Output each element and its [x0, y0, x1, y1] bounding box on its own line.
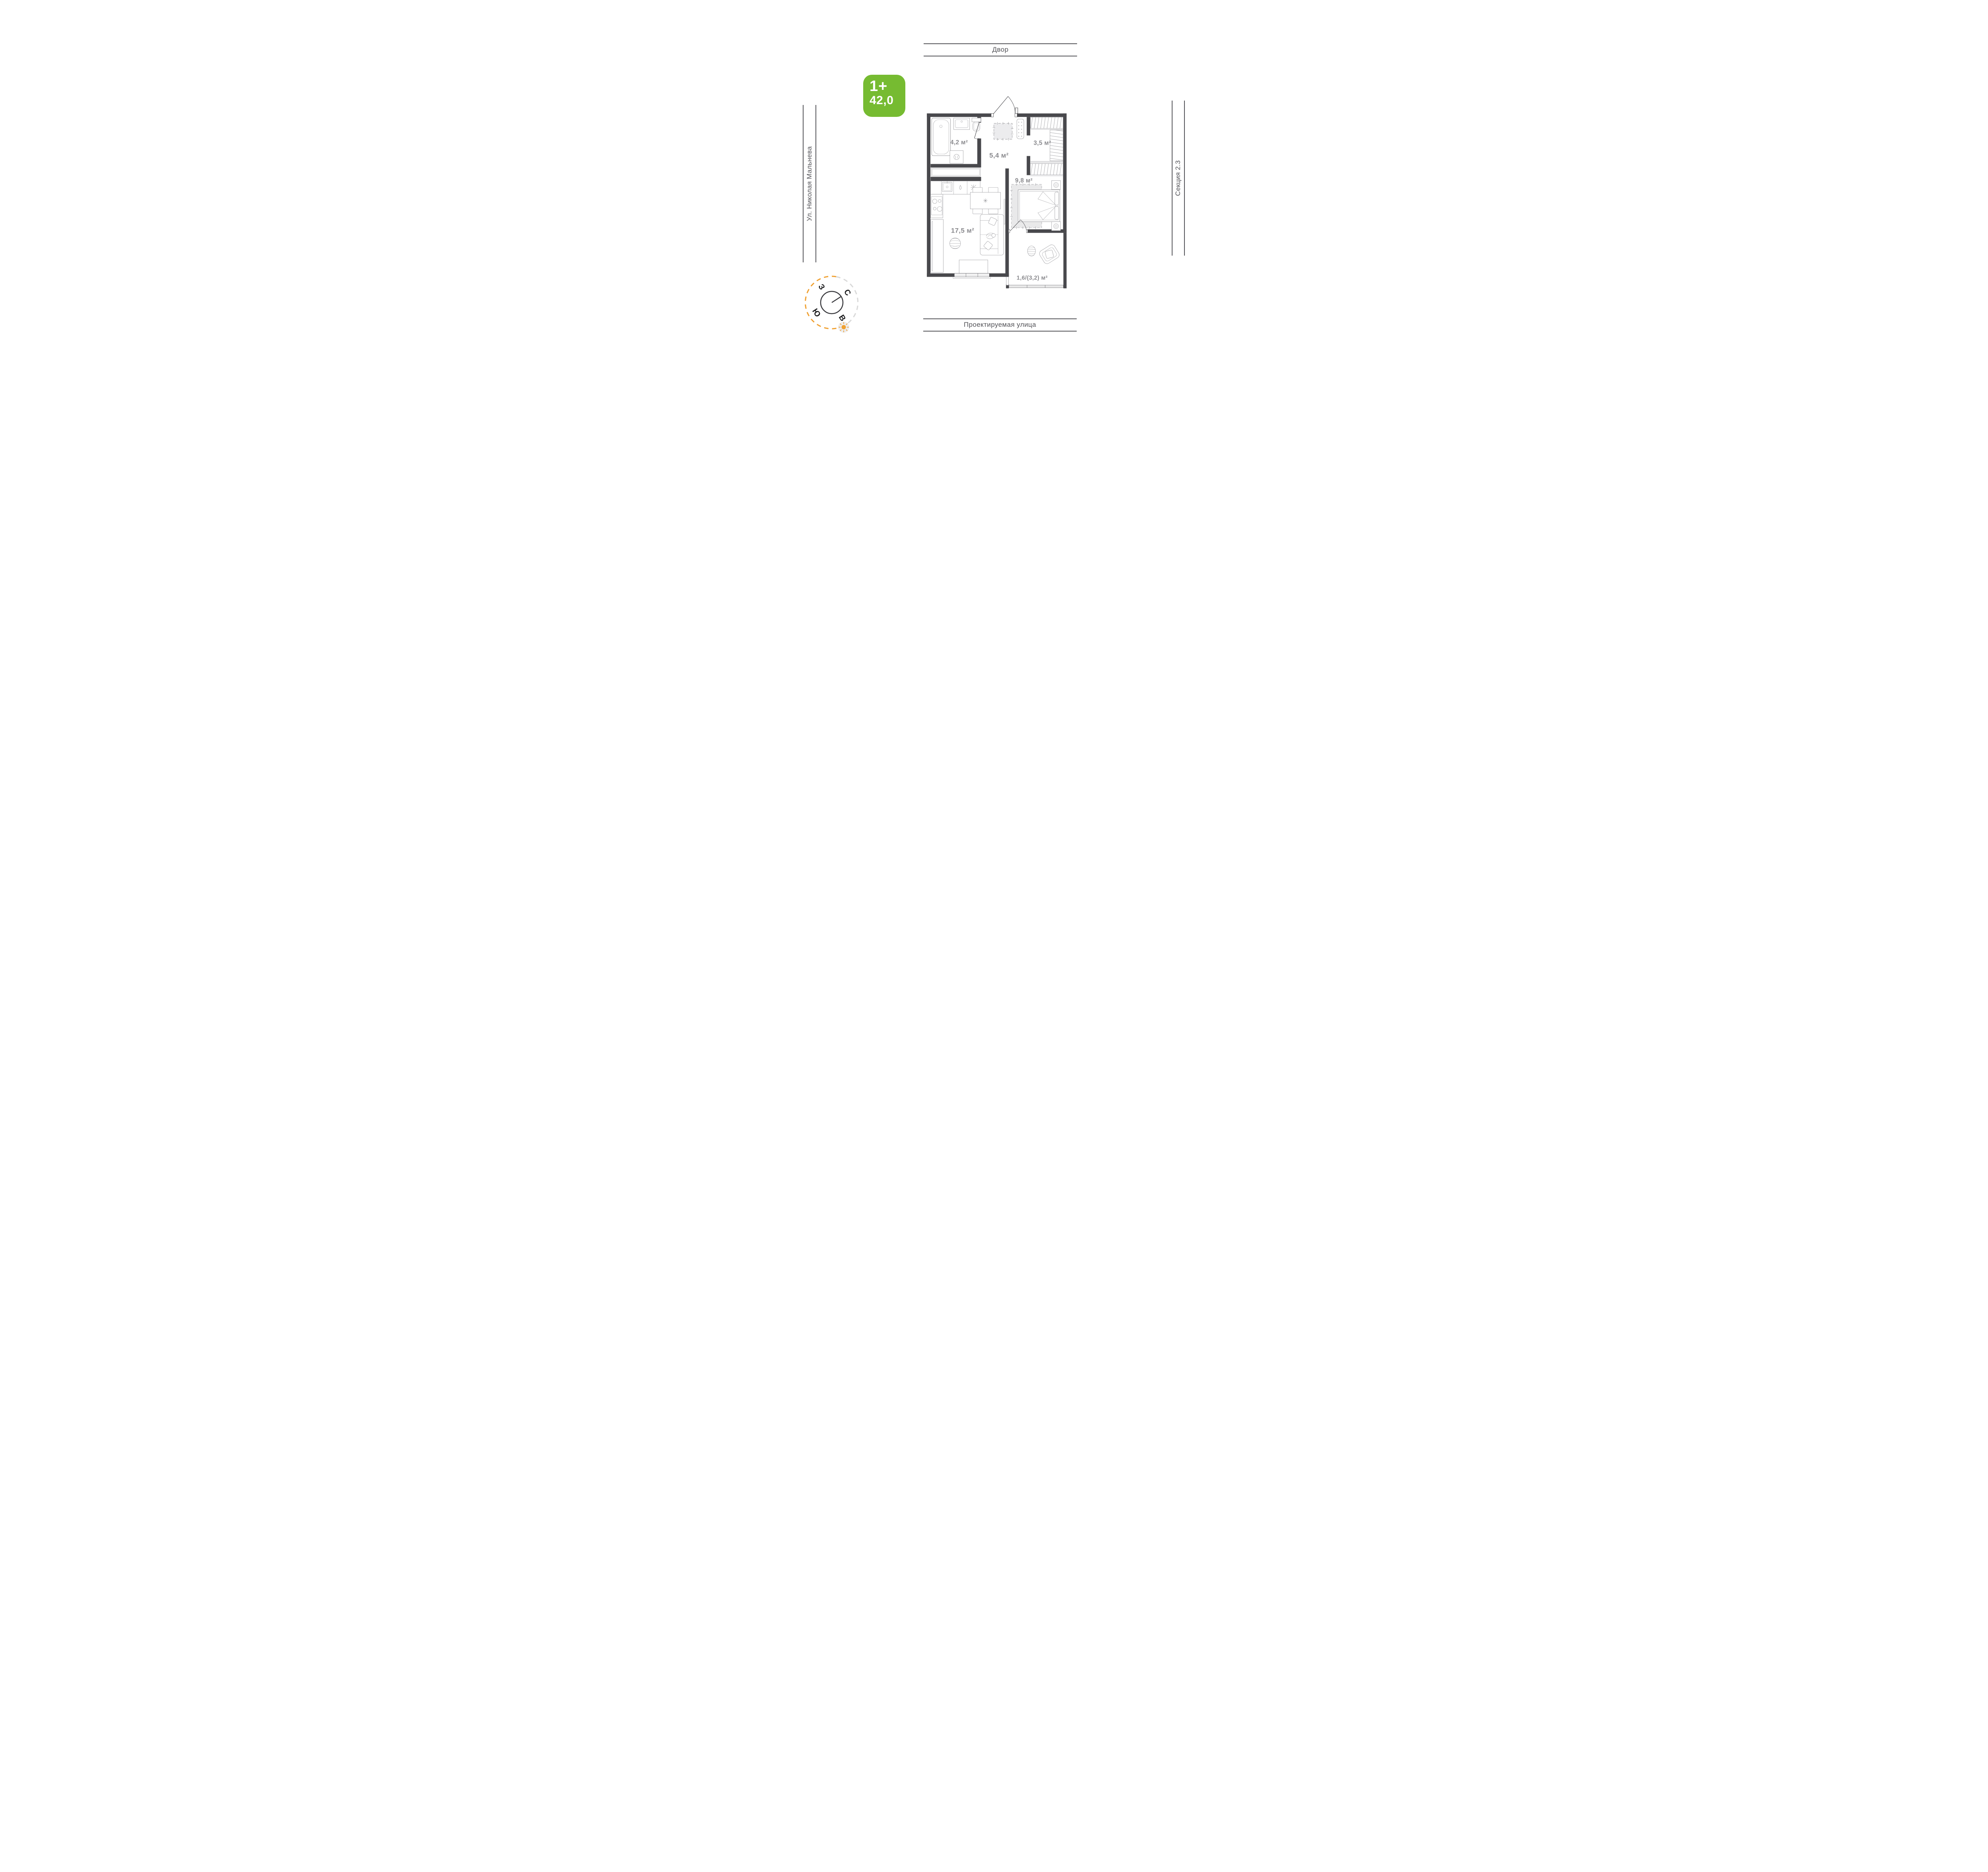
bed: [1018, 190, 1060, 221]
sun-icon: [839, 322, 848, 332]
chair: [988, 209, 998, 214]
nightstand: [1052, 222, 1060, 231]
chair: [973, 187, 982, 192]
compass: С В Ю З: [800, 271, 864, 334]
entrance-door-leaf: [993, 96, 1008, 114]
kitchen-sink: [942, 182, 952, 192]
balcony-side-panel: [1006, 277, 1009, 285]
living-window: [953, 274, 991, 279]
storage-niche: [931, 168, 980, 176]
label-bathroom-area: 4,2 м²: [950, 139, 968, 146]
pillow: [1055, 206, 1059, 219]
washing-machine: [950, 151, 963, 163]
street-left-line-outer: [803, 105, 804, 262]
entrance-threshold-right: [1015, 113, 1017, 117]
floor-plan: 4,2 м² 5,4 м² 3,5 м² 9,8 м² 17,5 м² 1,6/…: [922, 89, 1074, 290]
hall-planned-furniture: [994, 123, 1012, 139]
section-line-inner: [1172, 101, 1173, 256]
street-bottom-line-upper: [923, 318, 1077, 319]
wall-right: [1063, 113, 1067, 233]
balcony-door-threshold: [1026, 229, 1027, 233]
badge-rooms-count: 1+: [870, 79, 905, 94]
entrance-door-swing: [1008, 96, 1015, 113]
wall-balcony-right: [1064, 233, 1067, 289]
wall-living-bottom-b: [989, 274, 1009, 277]
wall-wardrobe-left-lower: [1027, 156, 1030, 175]
compass-letter-west: З: [816, 283, 826, 291]
street-top-label: Двор: [992, 46, 1009, 54]
label-hallway-area: 5,4 м²: [989, 151, 1009, 159]
media-unit: [959, 260, 988, 274]
label-living-area: 17,5 м²: [951, 227, 974, 235]
page: Двор Проектируемая улица Ул. Николая Мал…: [755, 0, 1233, 374]
wall-bath-bottom: [930, 164, 981, 167]
stove: [931, 196, 942, 215]
compass-letter-east: В: [837, 313, 847, 323]
label-balcony-area: 1,6/(3,2) м²: [1017, 275, 1048, 281]
street-left-line-inner: [815, 105, 816, 262]
wardrobe-shelf-right: [1050, 130, 1063, 161]
chair: [973, 209, 982, 214]
toilet-tank: [972, 118, 980, 122]
wall-bedroom-bottom-a: [1006, 229, 1009, 233]
nightstand: [1052, 180, 1060, 189]
wall-left: [927, 113, 930, 277]
dining-set: [970, 187, 1000, 214]
label-bedroom-area: 9,8 м²: [1015, 177, 1033, 184]
wall-bedroom-bottom-b: [1028, 229, 1067, 233]
wardrobe-room: [1030, 117, 1063, 176]
bedroom: [1009, 180, 1061, 233]
balcony-table: [1027, 246, 1035, 256]
street-left-label: Ул. Николая Мальнева: [806, 146, 813, 221]
wall-top-left: [927, 113, 991, 117]
entrance-door: [991, 96, 1017, 117]
shoe-cabinet: [1017, 119, 1024, 139]
wardrobe-shelf-top: [1031, 117, 1063, 128]
pillow: [1055, 192, 1059, 205]
chair: [988, 187, 998, 192]
street-top-line-upper: [924, 43, 1077, 44]
tv: [1004, 199, 1005, 224]
bedroom-built-in-wardrobe: [1030, 164, 1063, 175]
apartment-type-badge: 1+ 42,0: [863, 75, 905, 117]
wall-bath-right-bottom: [977, 138, 981, 164]
street-bottom-line-lower: [923, 331, 1077, 332]
street-top-line-lower: [924, 56, 1077, 56]
wall-top-right: [1017, 113, 1066, 117]
section-label: Секция 2.3: [1174, 160, 1182, 196]
wall-living-bottom-a: [927, 274, 954, 277]
balcony-door-threshold: [1009, 229, 1010, 233]
niche-outer: [931, 168, 980, 176]
wall-wardrobe-left-upper: [1027, 117, 1030, 136]
label-wardrobe-area: 3,5 м²: [1034, 140, 1051, 146]
vent-shaft: [1015, 108, 1017, 113]
section-line-outer: [1184, 101, 1185, 256]
compass-letter-north: С: [842, 288, 852, 297]
hallway-zone: [992, 119, 1024, 140]
entrance-threshold-left: [991, 113, 994, 117]
bathtub-inner: [933, 120, 949, 154]
balcony-armchair: [1038, 243, 1060, 265]
window-sill: [953, 277, 991, 278]
wall-divider: [1006, 169, 1009, 277]
badge-total-area: 42,0: [870, 94, 905, 108]
street-bottom-label: Проектируемая улица: [964, 321, 1036, 329]
wall-kitchen-top: [930, 177, 981, 181]
tall-cabinet: [930, 219, 943, 272]
compass-letter-south: Ю: [810, 307, 822, 318]
table-flower: [983, 198, 988, 203]
